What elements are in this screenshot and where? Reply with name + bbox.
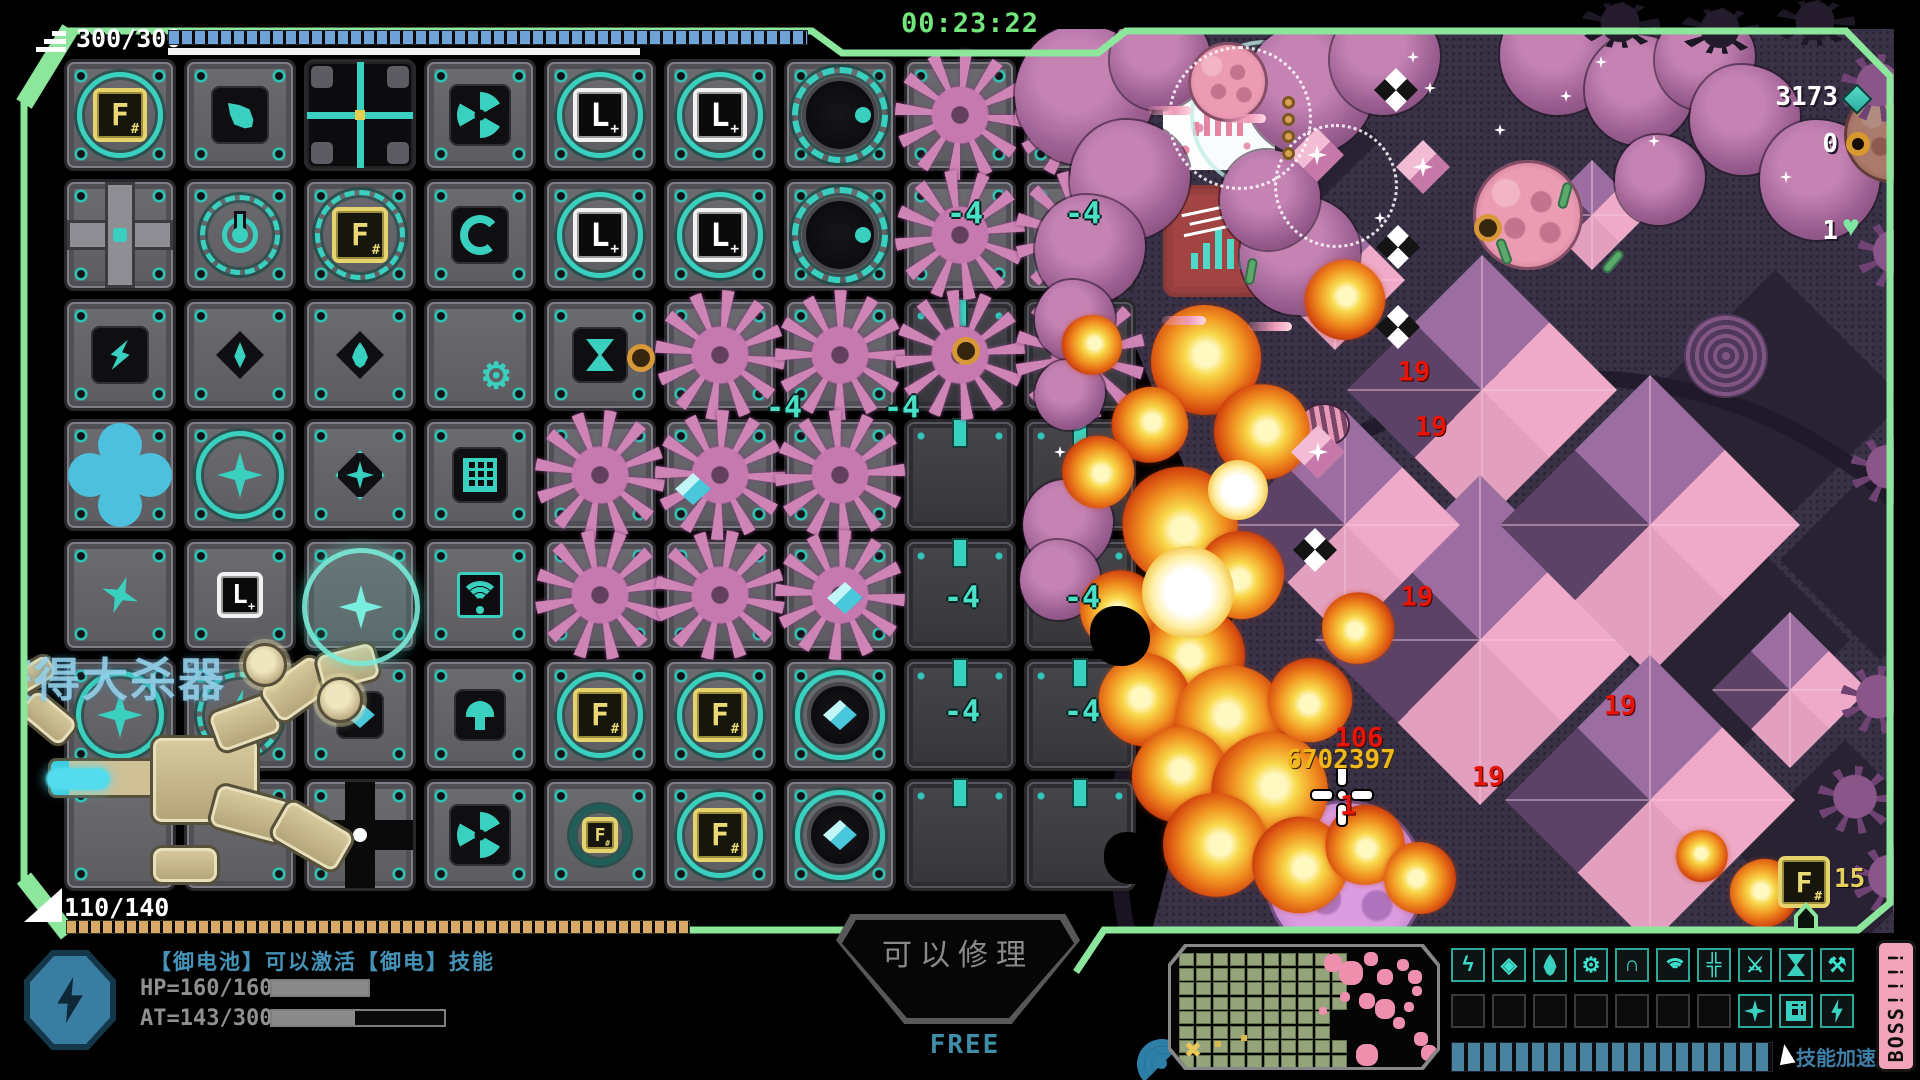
minimap-cell xyxy=(1264,1055,1279,1068)
minimap-cell xyxy=(1264,1011,1279,1024)
minimap-cell xyxy=(1298,1011,1313,1024)
minimap-cell xyxy=(1179,1055,1194,1068)
minimap-cell xyxy=(1247,953,1262,966)
minimap-cell xyxy=(1230,968,1245,981)
minimap-cell xyxy=(1247,1011,1262,1024)
toolbar-icon-hourglass[interactable] xyxy=(1779,948,1813,982)
minimap-cell xyxy=(1230,1040,1245,1053)
toolbar-icon-hammer[interactable]: ⚒ xyxy=(1820,948,1854,982)
minimap-enemy xyxy=(1397,959,1409,971)
repair-price: FREE xyxy=(880,1030,1050,1060)
minimap-enemy xyxy=(1393,1017,1405,1029)
repair-label: 可以修理 xyxy=(836,930,1080,974)
hp-bar xyxy=(270,979,370,997)
minimap-cell xyxy=(1247,997,1262,1010)
minimap-cell xyxy=(1213,1055,1228,1068)
minimap-cell xyxy=(1264,1040,1279,1053)
minimap-cell xyxy=(1230,1011,1245,1024)
toolbar-icon-zigzag[interactable]: ϟ xyxy=(1451,948,1485,982)
lightning-icon xyxy=(1828,999,1846,1023)
grid-icon xyxy=(1786,1001,1806,1021)
minimap-enemy xyxy=(1340,992,1350,1002)
mission-timer: 00:23:22 xyxy=(860,8,1080,39)
minimap-cell xyxy=(1281,982,1296,995)
toolbar-slot-empty[interactable] xyxy=(1533,994,1567,1028)
minimap-cell xyxy=(1264,953,1279,966)
minimap-cell xyxy=(1213,968,1228,981)
minimap-cell xyxy=(1298,1040,1313,1053)
minimap-cell xyxy=(1179,982,1194,995)
toolbar-slot-empty[interactable] xyxy=(1451,994,1485,1028)
toolbar-slot-empty[interactable] xyxy=(1492,994,1526,1028)
minimap-cell xyxy=(1315,1055,1330,1068)
currency-value: 0 xyxy=(1768,129,1838,159)
minimap-enemy xyxy=(1377,969,1393,985)
boss-badge: BOSS!!!! xyxy=(1876,940,1916,1072)
minimap-cell xyxy=(1196,982,1211,995)
minimap-cell xyxy=(1298,997,1313,1010)
minimap-cell xyxy=(1230,982,1245,995)
toolbar-slot-empty[interactable] xyxy=(1656,994,1690,1028)
game-viewport: F#L+L+F#L+L+⚙L+F#F#F#F#-4-4-4-4-4-4-4-41… xyxy=(0,0,1920,1080)
minimap-enemy xyxy=(1404,1002,1414,1012)
minimap-cell xyxy=(1213,997,1228,1010)
minimap-cell xyxy=(1298,1055,1313,1068)
toolbar-icon-grid[interactable] xyxy=(1779,994,1813,1028)
skill-hint-text: 【御电池】可以激活【御电】技能 xyxy=(150,946,495,976)
minimap-cell xyxy=(1247,982,1262,995)
minimap-cell xyxy=(1247,1026,1262,1039)
minimap-cell xyxy=(1196,1011,1211,1024)
at-bar xyxy=(270,1009,446,1027)
minimap-cell xyxy=(1213,1026,1228,1039)
minimap-enemy xyxy=(1408,970,1422,984)
ammo-bar xyxy=(168,30,808,45)
minimap-dot xyxy=(1241,1035,1247,1041)
minimap-cell xyxy=(1196,997,1211,1010)
minimap-cell xyxy=(1196,953,1211,966)
minimap-cell xyxy=(1179,953,1194,966)
minimap-cell xyxy=(1179,968,1194,981)
minimap-cell xyxy=(1264,982,1279,995)
minimap-enemy xyxy=(1339,961,1363,985)
toolbar-slot-empty[interactable] xyxy=(1697,994,1731,1028)
toolbar-icon-cross[interactable]: ╬ xyxy=(1697,948,1731,982)
skill-accel-label: 技能加速 xyxy=(1796,1042,1876,1071)
minimap-cell xyxy=(1230,953,1245,966)
minimap-enemy xyxy=(1359,993,1375,1009)
minimap-cell xyxy=(1315,1026,1330,1039)
charge-counter: 110/140 xyxy=(64,893,169,922)
minimap-cell xyxy=(1213,953,1228,966)
signal-dot xyxy=(1156,1058,1167,1069)
minimap-cell xyxy=(1196,1026,1211,1039)
minimap-cell xyxy=(1315,1040,1330,1053)
minimap-cell xyxy=(1281,953,1296,966)
toolbar-icon-gem[interactable]: ◈ xyxy=(1492,948,1526,982)
toolbar-icon-wifi[interactable] xyxy=(1656,948,1690,982)
minimap-cell xyxy=(1298,953,1313,966)
minimap-enemy xyxy=(1356,1044,1378,1066)
toolbar-slot-empty[interactable] xyxy=(1574,994,1608,1028)
hourglass-icon xyxy=(1787,954,1805,976)
minimap-cell xyxy=(1179,1026,1194,1039)
menu-icon[interactable] xyxy=(36,28,66,52)
minimap-cell xyxy=(1298,968,1313,981)
minimap-cell xyxy=(1315,982,1330,995)
minimap-cell xyxy=(1281,1026,1296,1039)
score-value: 3173 xyxy=(1768,82,1838,112)
minimap-cell xyxy=(1332,1055,1347,1068)
toolbar-icon-flame[interactable] xyxy=(1533,948,1567,982)
minimap-cell xyxy=(1298,982,1313,995)
toolbar-icon-sparkle[interactable] xyxy=(1738,994,1772,1028)
minimap-cell xyxy=(1281,997,1296,1010)
minimap-cell xyxy=(1196,968,1211,981)
minimap-cell xyxy=(1247,1040,1262,1053)
minimap-cell xyxy=(1213,1011,1228,1024)
minimap-cell xyxy=(1230,997,1245,1010)
minimap-enemy xyxy=(1364,952,1378,966)
minimap-cell xyxy=(1179,997,1194,1010)
minimap-cell xyxy=(1196,1055,1211,1068)
skill-energy-bar xyxy=(1451,1042,1773,1072)
hp-label: HP=160/160 xyxy=(140,976,272,1001)
minimap-cell xyxy=(1298,1026,1313,1039)
minimap-cell xyxy=(1332,1040,1347,1053)
wifi-arc-icon xyxy=(1663,958,1687,982)
at-label: AT=143/300 xyxy=(140,1006,272,1031)
home-marker-icon xyxy=(1796,905,1816,930)
minimap-cell xyxy=(1281,1055,1296,1068)
minimap-cell xyxy=(1281,1040,1296,1053)
minimap-cell xyxy=(1264,1026,1279,1039)
minimap-cell xyxy=(1281,968,1296,981)
toolbar-slot-empty[interactable] xyxy=(1615,994,1649,1028)
minimap-dot xyxy=(1215,1041,1221,1047)
minimap-cell xyxy=(1264,997,1279,1010)
minimap-cell xyxy=(1179,1011,1194,1024)
toolbar-icon-bolt[interactable] xyxy=(1820,994,1854,1028)
charge-bar xyxy=(66,920,690,934)
flame-icon xyxy=(1541,954,1559,976)
minimap-cell xyxy=(1281,1011,1296,1024)
minimap-cell xyxy=(1264,968,1279,981)
lives-value: 1 xyxy=(1768,216,1838,246)
minimap-enemy xyxy=(1319,1007,1327,1015)
minimap-cell xyxy=(1247,968,1262,981)
toolbar-icon-sword[interactable]: ⚔ xyxy=(1738,948,1772,982)
minimap-cell xyxy=(1213,982,1228,995)
toolbar-icon-arch[interactable]: ∩ xyxy=(1615,948,1649,982)
heart-icon: ♥ xyxy=(1842,210,1860,244)
ring-gold-icon xyxy=(1846,132,1870,156)
minimap-enemy xyxy=(1414,1032,1428,1046)
signal-icon xyxy=(1116,1016,1174,1074)
ammo-counter: 300/300 xyxy=(76,24,181,53)
minimap-cell xyxy=(1230,1055,1245,1068)
minimap[interactable] xyxy=(1168,944,1440,1070)
minimap-cell xyxy=(1247,1055,1262,1068)
minimap-enemy xyxy=(1375,999,1395,1019)
shield-bar xyxy=(168,48,640,55)
minimap-enemy xyxy=(1412,986,1422,996)
sparkle-icon xyxy=(1744,1000,1766,1022)
toolbar-icon-gear[interactable]: ⚙ xyxy=(1574,948,1608,982)
